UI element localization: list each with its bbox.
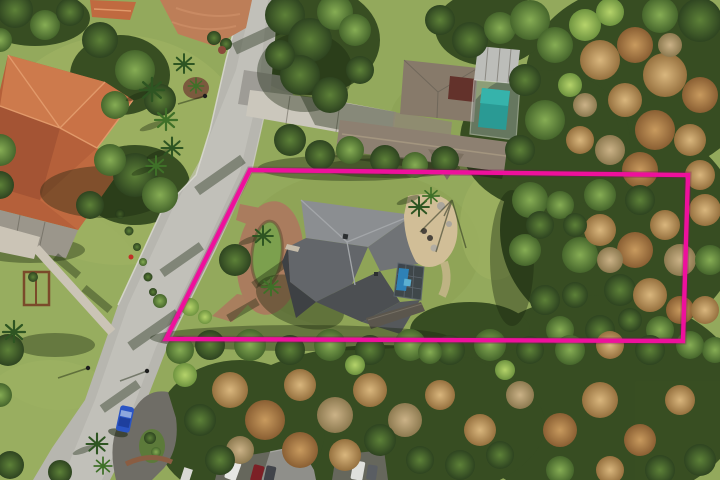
spa: [403, 279, 411, 287]
dark-deck: [448, 76, 476, 102]
red-grill: [129, 255, 134, 260]
aerial-photo: Aerial drone view of a wooded residentia…: [0, 0, 720, 480]
screened-pool-enclosure: [394, 263, 424, 300]
aerial-photo-canvas: [0, 0, 720, 480]
